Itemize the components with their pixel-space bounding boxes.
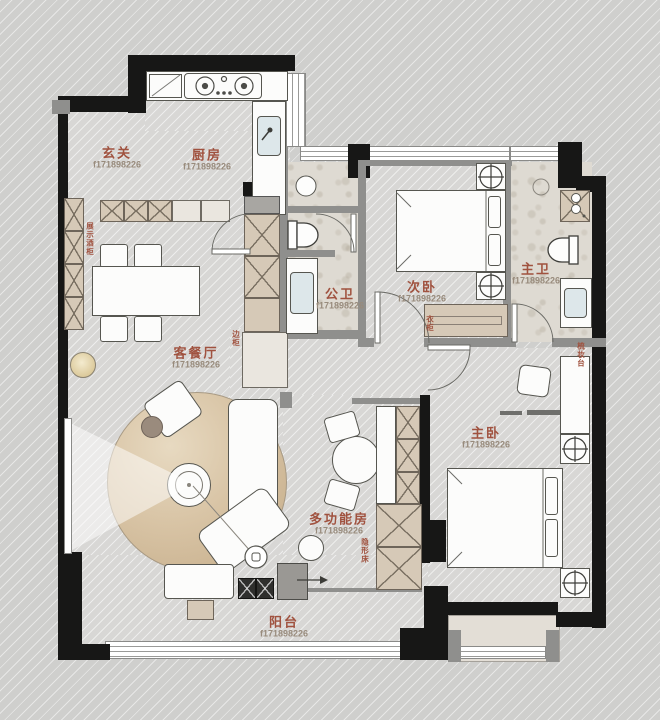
annotation-side-cabinet: 边柜 <box>232 330 240 347</box>
room-name: 客餐厅 <box>173 345 218 360</box>
plan-overlay <box>0 0 660 720</box>
room-label-entry: 玄关 f171898226 <box>93 146 141 169</box>
room-name: 多功能房 <box>309 511 369 526</box>
room-name: 主卫 <box>521 261 551 276</box>
room-label-living-dining: 客餐厅 f171898226 <box>172 346 220 369</box>
room-name: 公卫 <box>325 286 355 301</box>
door-arc <box>212 214 250 252</box>
floor-plan: 玄关 f171898226 厨房 f171898226 公卫 f17189822… <box>0 0 660 720</box>
lamp-icon <box>562 570 588 596</box>
watermark: f171898226 <box>93 160 141 169</box>
toilet-bowl <box>297 223 318 247</box>
door-leaf <box>428 345 470 350</box>
projector-beam <box>72 424 194 550</box>
lamp-icon <box>562 436 588 462</box>
watermark: f171898226 <box>172 360 220 369</box>
room-label-multifunction: 多功能房 f171898226 <box>309 512 369 535</box>
lamp-icon <box>478 164 504 190</box>
door-leaf <box>512 304 517 342</box>
watermark: f171898226 <box>316 301 364 310</box>
watermark: f171898226 <box>398 294 446 303</box>
room-name: 玄关 <box>102 145 132 160</box>
room-label-balcony: 阳台 f171898226 <box>260 615 308 638</box>
annotation-wardrobe: 衣柜 <box>426 315 434 332</box>
door-arc <box>316 214 354 252</box>
corner-glass-line <box>152 75 180 96</box>
washer-knob <box>572 194 581 203</box>
door-leaf <box>212 249 250 254</box>
projector-icon <box>245 546 267 568</box>
toilet-tank <box>288 221 297 249</box>
cable-line <box>193 486 252 553</box>
room-name: 主卧 <box>471 425 501 440</box>
annotation-wine-cabinet: 展示酒柜 <box>86 222 94 256</box>
door-arc <box>428 348 470 390</box>
watermark: f171898226 <box>260 629 308 638</box>
room-name: 厨房 <box>192 147 222 162</box>
room-name: 次卧 <box>407 279 437 294</box>
floor-drain <box>533 179 549 195</box>
washer-knob <box>572 205 581 214</box>
room-label-public-bath: 公卫 f171898226 <box>316 287 364 310</box>
room-label-master-bath: 主卫 f171898226 <box>512 262 560 285</box>
toilet-tank <box>569 236 578 264</box>
watermark: f171898226 <box>183 162 231 171</box>
door-arc <box>515 304 553 342</box>
toilet-bowl <box>548 238 569 262</box>
annotation-dressing-table: 梳妆台 <box>577 342 585 368</box>
room-name: 阳台 <box>269 614 299 629</box>
room-label-kitchen: 厨房 f171898226 <box>183 148 231 171</box>
annotation-hidden-bed: 隐形床 <box>361 538 369 564</box>
basin-icon <box>296 176 316 196</box>
door-leaf <box>375 292 380 343</box>
watermark: f171898226 <box>309 526 369 535</box>
room-label-master-bedroom: 主卧 f171898226 <box>462 426 510 449</box>
watermark: f171898226 <box>512 276 560 285</box>
watermark: f171898226 <box>462 440 510 449</box>
lamp-icon <box>478 273 504 299</box>
room-label-second-bedroom: 次卧 f171898226 <box>398 280 446 303</box>
